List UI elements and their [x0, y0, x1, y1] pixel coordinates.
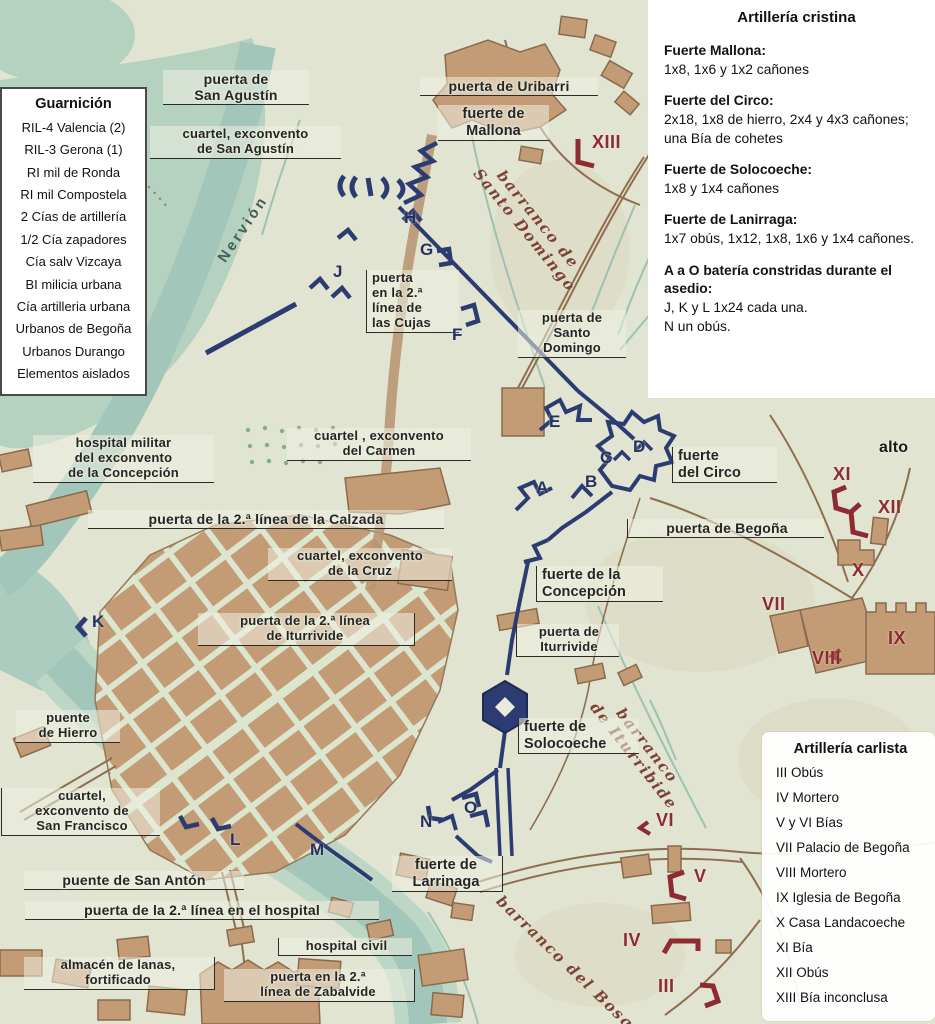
legend-artilleria-carlista: Artillería carlista III Obús IV Mortero … [762, 732, 935, 1021]
legend-guarnicion: Guarnición RIL-4 Valencia (2) RIL-3 Gero… [0, 87, 147, 396]
carlist-battery-XII: XII [878, 497, 902, 518]
garrison-item: Elementos aislados [4, 363, 143, 385]
legend-entry-name: A a O batería constridas durante el ased… [664, 262, 929, 299]
carlista-item: V y VI Bías [772, 811, 929, 836]
legend-entry-desc: J, K y L 1x24 cada una. N un obús. [664, 299, 929, 336]
legend-entry-name: Fuerte del Circo: [664, 92, 929, 111]
legend-entry-desc: 1x8 y 1x4 cañones [664, 180, 929, 199]
label-cuartel-carmen: cuartel , exconvento del Carmen [287, 428, 471, 461]
garrison-item: Cía salv Vizcaya [4, 251, 143, 273]
battery-letter-M: M [310, 840, 324, 860]
carlista-item: XI Bía [772, 936, 929, 961]
carlist-battery-III: III [658, 976, 675, 997]
label-alto: alto [876, 438, 911, 458]
battery-letter-B: B [585, 472, 597, 492]
label-puente-hierro: puente de Hierro [16, 710, 120, 743]
label-fuerte-concepcion: fuerte de la Concepción [536, 566, 663, 602]
carlista-item: VII Palacio de Begoña [772, 836, 929, 861]
battery-letter-N: N [420, 812, 432, 832]
label-cuartel-san-agustin: cuartel, exconvento de San Agustín [150, 126, 341, 159]
label-puerta-santo-domingo: puerta de Santo Domingo [518, 310, 626, 358]
label-puerta-iturrivide: puerta de Iturrivide [516, 624, 619, 657]
label-almacen-lanas: almacén de lanas, fortificado [24, 957, 215, 990]
battery-letter-C: C [600, 448, 612, 468]
battery-letter-F: F [452, 325, 462, 345]
battery-letter-K: K [92, 612, 104, 632]
legend-entry-circo: Fuerte del Circo: 2x18, 1x8 de hierro, 2… [664, 92, 929, 148]
siege-of-bilbao-map: Artillería cristina Fuerte Mallona: 1x8,… [0, 0, 935, 1024]
label-fuerte-circo: fuerte del Circo [672, 447, 777, 483]
label-fuerte-larrinaga: fuerte de Larrinaga [392, 856, 503, 892]
legend-entry-asedio: A a O batería constridas durante el ased… [664, 262, 929, 337]
garrison-item: RIL-3 Gerona (1) [4, 139, 143, 161]
carlista-item: VIII Mortero [772, 861, 929, 886]
label-hospital-militar: hospital militar del exconvento de la Co… [33, 435, 214, 483]
legend-carlista-title: Artillería carlista [772, 741, 929, 757]
battery-letter-D: D [633, 437, 645, 457]
battery-letter-H: H [404, 208, 416, 228]
carlista-item: III Obús [772, 761, 929, 786]
carlista-item: XIII Bía inconclusa [772, 986, 929, 1011]
garrison-item: Urbanos Durango [4, 341, 143, 363]
battery-letter-A: A [536, 478, 548, 498]
legend-entry-name: Fuerte de Solocoeche: [664, 161, 929, 180]
legend-entry-desc: 2x18, 1x8 de hierro, 2x4 y 4x3 cañones; … [664, 111, 929, 148]
label-puerta-uribarri: puerta de Uribarri [420, 77, 598, 96]
legend-entry-name: Fuerte Mallona: [664, 42, 929, 61]
label-fuerte-mallona: fuerte de Mallona [438, 105, 549, 141]
carlist-battery-IV: IV [623, 930, 641, 951]
battery-letter-L: L [230, 830, 240, 850]
label-puerta-begona: puerta de Begoña [627, 519, 824, 538]
label-cuartel-cruz: cuartel, exconvento de la Cruz [268, 548, 452, 581]
carlist-battery-VI: VI [656, 810, 674, 831]
label-puerta-cujas: puerta en la 2.ª línea de las Cujas [366, 270, 459, 333]
label-fuerte-solocoeche: fuerte de Solocoeche [518, 718, 639, 754]
legend-entry-desc: 1x7 obús, 1x12, 1x8, 1x6 y 1x4 cañones. [664, 230, 929, 249]
legend-guarnicion-title: Guarnición [4, 96, 143, 112]
carlist-battery-XIII: XIII [592, 132, 621, 153]
label-puente-san-anton: puente de San Antón [24, 871, 244, 890]
label-puerta-san-agustin: puerta de San Agustín [163, 70, 309, 105]
battery-letter-O: O [464, 798, 477, 818]
battery-letter-E: E [549, 412, 560, 432]
carlist-battery-VIII: VIII [812, 648, 841, 669]
label-hospital-civil: hospital civil [278, 938, 412, 956]
legend-entry-mallona: Fuerte Mallona: 1x8, 1x6 y 1x2 cañones [664, 42, 929, 79]
legend-entry-lanirraga: Fuerte de Lanirraga: 1x7 obús, 1x12, 1x8… [664, 211, 929, 248]
carlista-item: XII Obús [772, 961, 929, 986]
legend-entry-solocoeche: Fuerte de Solocoeche: 1x8 y 1x4 cañones [664, 161, 929, 198]
carlist-battery-VII: VII [762, 594, 786, 615]
carlist-battery-X: X [852, 560, 865, 581]
label-puerta-zabalvide: puerta en la 2.ª línea de Zabalvide [224, 969, 415, 1002]
garrison-item: BI milicia urbana [4, 274, 143, 296]
battery-letter-G: G [420, 240, 433, 260]
label-puerta-hospital: puerta de la 2.ª línea en el hospital [25, 901, 379, 920]
garrison-item: 2 Cías de artillería [4, 206, 143, 228]
garrison-item: Urbanos de Begoña [4, 318, 143, 340]
carlista-item: IX Iglesia de Begoña [772, 886, 929, 911]
garrison-item: RI mil de Ronda [4, 162, 143, 184]
legend-artilleria-cristina: Artillería cristina Fuerte Mallona: 1x8,… [648, 0, 935, 398]
carlista-item: X Casa Landacoeche [772, 911, 929, 936]
legend-entry-name: Fuerte de Lanirraga: [664, 211, 929, 230]
legend-entry-desc: 1x8, 1x6 y 1x2 cañones [664, 61, 929, 80]
label-puerta-calzada: puerta de la 2.ª línea de la Calzada [88, 510, 444, 529]
carlista-item: IV Mortero [772, 786, 929, 811]
carlist-battery-V: V [694, 866, 707, 887]
label-cuartel-san-francisco: cuartel, exconvento de San Francisco [1, 788, 160, 836]
battery-letter-J: J [333, 262, 342, 282]
carlist-battery-IX: IX [888, 628, 906, 649]
garrison-item: RI mil Compostela [4, 184, 143, 206]
label-puerta-iturrivide-2a-linea: puerta de la 2.ª línea de Iturrivide [198, 613, 415, 646]
legend-cristina-title: Artillería cristina [664, 9, 929, 26]
garrison-item: RIL-4 Valencia (2) [4, 117, 143, 139]
garrison-item: Cía artilleria urbana [4, 296, 143, 318]
carlist-battery-XI: XI [833, 464, 851, 485]
garrison-item: 1/2 Cía zapadores [4, 229, 143, 251]
